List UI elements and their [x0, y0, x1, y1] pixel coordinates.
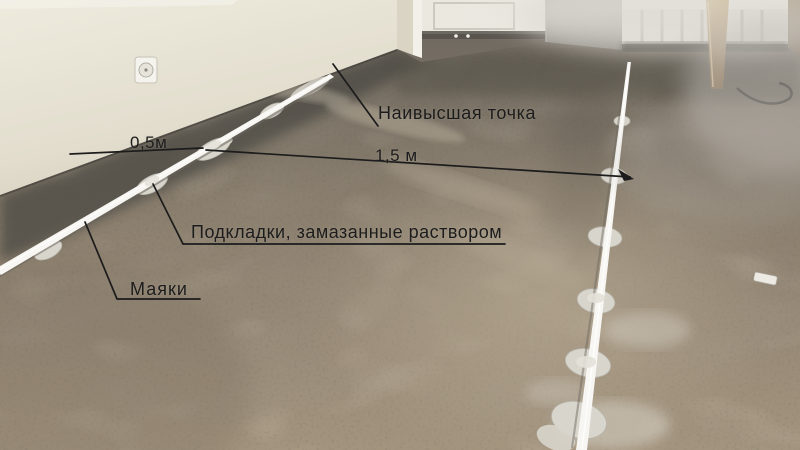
label-beacons: Маяки — [130, 280, 188, 298]
power-outlet — [135, 57, 157, 83]
annotated-floor-photo: Наивысшая точка 0,5м 1,5 м Подкладки, за… — [0, 0, 800, 450]
label-highest-point: Наивысшая точка — [378, 104, 536, 122]
label-distance-to-wall: 0,5м — [130, 134, 167, 151]
room-corner-wall — [397, 0, 422, 58]
label-distance-between-beacons: 1,5 м — [375, 147, 418, 164]
door-frame — [413, 0, 422, 58]
label-mortar-pads: Подкладки, замазанные раствором — [191, 223, 502, 241]
